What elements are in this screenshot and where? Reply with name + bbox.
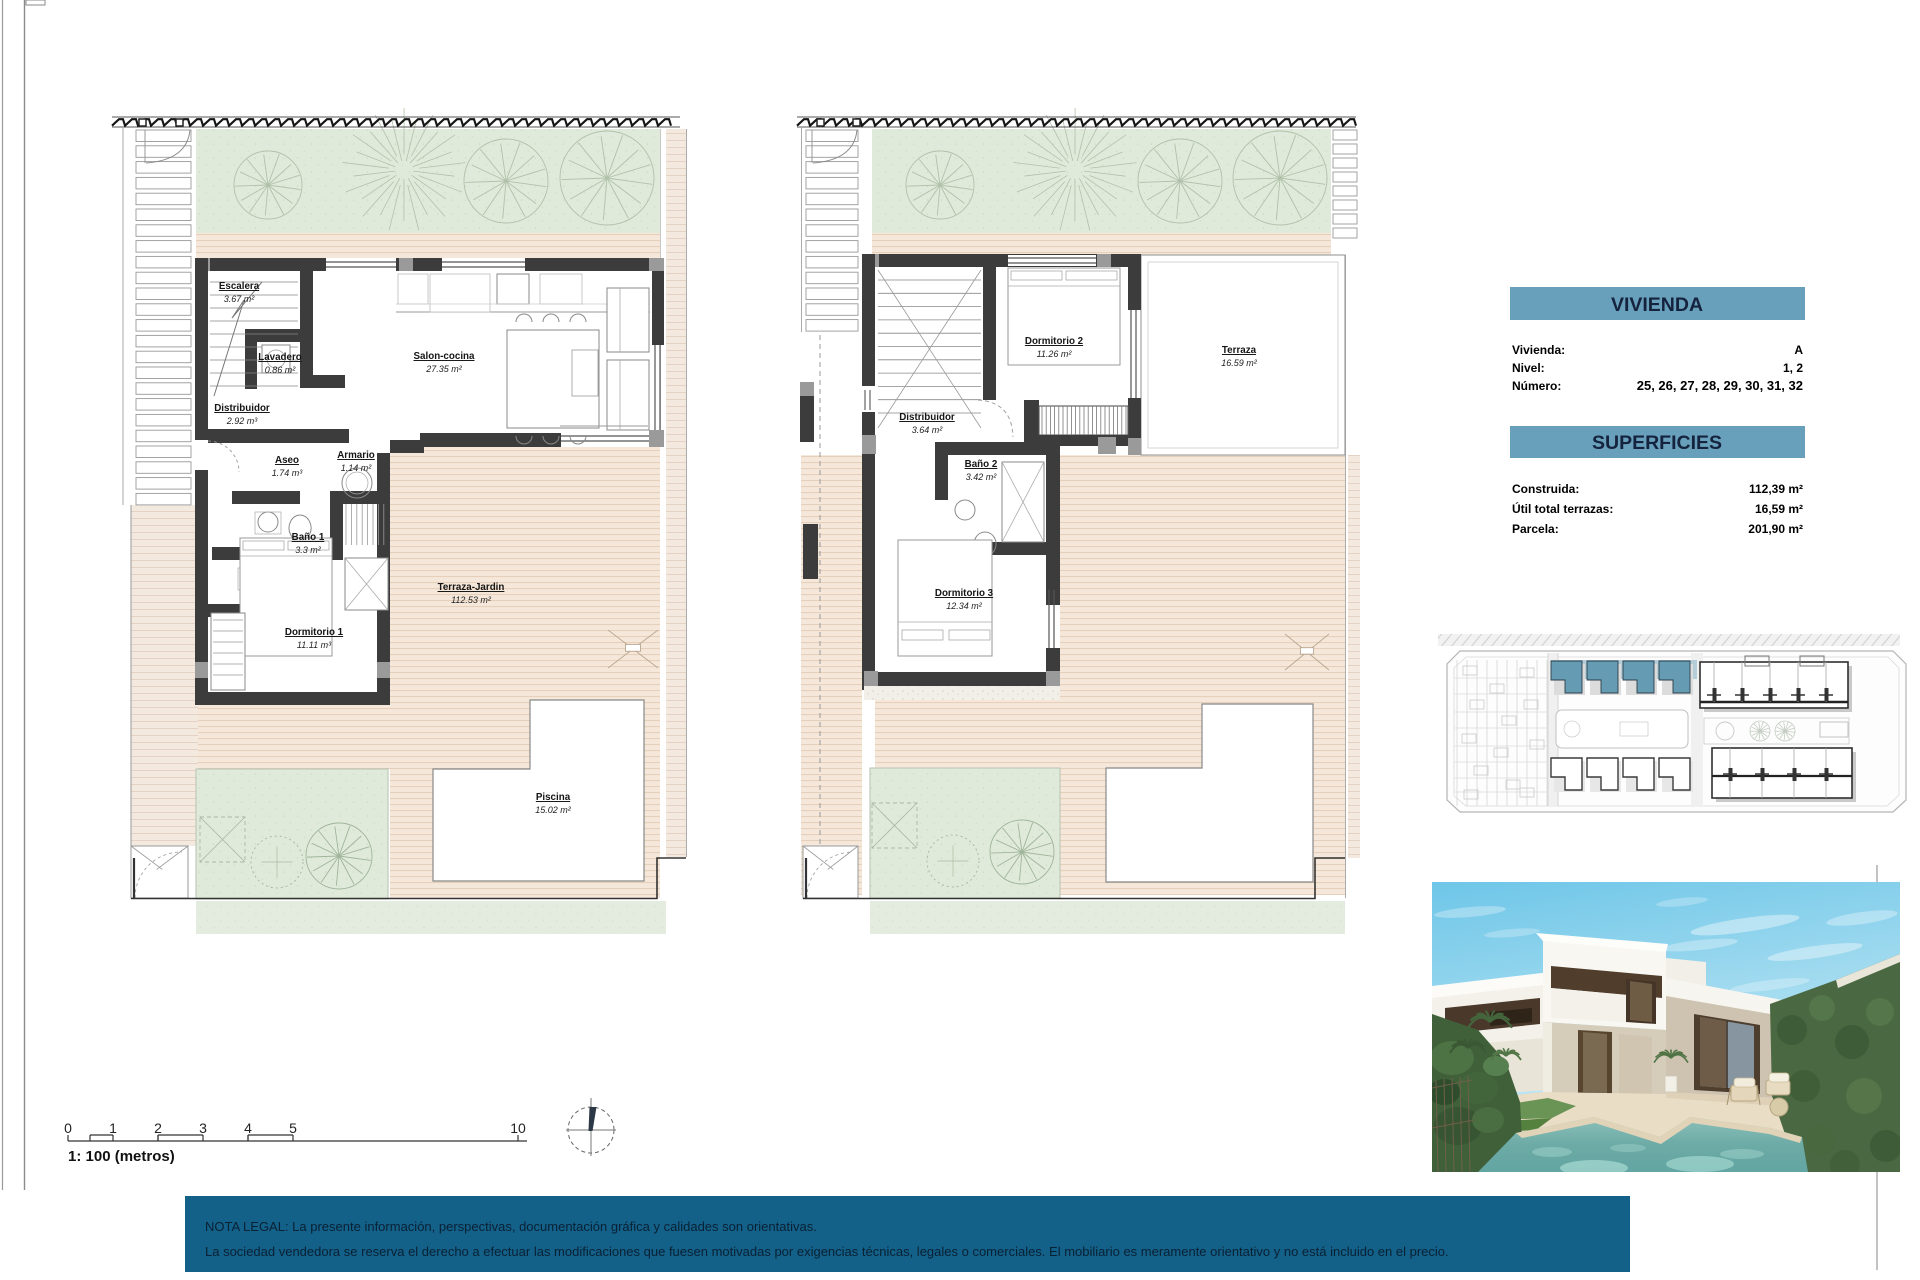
svg-text:Construida:: Construida: xyxy=(1512,482,1579,496)
svg-text:1: 1 xyxy=(109,1120,117,1136)
svg-text:10: 10 xyxy=(510,1120,526,1136)
svg-text:2: 2 xyxy=(154,1120,162,1136)
svg-text:Nivel:: Nivel: xyxy=(1512,361,1545,375)
svg-text:Escalera: Escalera xyxy=(219,281,260,292)
svg-text:3: 3 xyxy=(199,1120,207,1136)
svg-text:Distribuidor: Distribuidor xyxy=(899,412,955,423)
svg-text:15.02 m²: 15.02 m² xyxy=(535,805,572,815)
svg-text:12.34 m²: 12.34 m² xyxy=(946,601,983,611)
svg-text:3.64 m²: 3.64 m² xyxy=(912,425,944,435)
svg-text:0.86 m²: 0.86 m² xyxy=(265,365,297,375)
svg-text:Parcela:: Parcela: xyxy=(1512,522,1559,536)
svg-text:16.59 m²: 16.59 m² xyxy=(1221,358,1258,368)
svg-text:Baño 2: Baño 2 xyxy=(965,459,998,470)
svg-text:Vivienda:: Vivienda: xyxy=(1512,343,1565,357)
svg-text:1: 100 (metros): 1: 100 (metros) xyxy=(68,1148,175,1165)
svg-text:1.14 m²: 1.14 m² xyxy=(341,463,373,473)
svg-text:Distribuidor: Distribuidor xyxy=(214,403,270,414)
svg-text:1.74 m³: 1.74 m³ xyxy=(272,468,304,478)
svg-text:3.42 m²: 3.42 m² xyxy=(966,472,998,482)
svg-text:25, 26, 27, 28, 29, 30, 31, 3: 25, 26, 27, 28, 29, 30, 31, 32 xyxy=(1637,378,1803,393)
svg-text:27.35 m²: 27.35 m² xyxy=(425,364,463,374)
svg-text:2.92 m³: 2.92 m³ xyxy=(226,416,259,426)
svg-text:Útil total terrazas:: Útil total terrazas: xyxy=(1512,501,1613,516)
svg-text:3.67 m²: 3.67 m² xyxy=(224,294,256,304)
svg-text:Terraza: Terraza xyxy=(1222,345,1257,356)
svg-text:1, 2: 1, 2 xyxy=(1783,361,1803,375)
svg-text:Salon-cocina: Salon-cocina xyxy=(414,351,476,362)
svg-text:Aseo: Aseo xyxy=(275,455,299,466)
svg-text:201,90 m²: 201,90 m² xyxy=(1748,522,1803,536)
svg-text:A: A xyxy=(1794,343,1803,357)
svg-text:Piscina: Piscina xyxy=(536,792,571,803)
svg-text:5: 5 xyxy=(289,1120,297,1136)
svg-text:4: 4 xyxy=(244,1120,252,1136)
svg-text:Armario: Armario xyxy=(337,450,375,461)
svg-text:112.53 m²: 112.53 m² xyxy=(451,595,492,605)
svg-text:La sociedad vendedora se reser: La sociedad vendedora se reserva el dere… xyxy=(205,1244,1449,1259)
svg-text:16,59 m²: 16,59 m² xyxy=(1755,502,1803,516)
svg-text:112,39 m²: 112,39 m² xyxy=(1749,482,1803,496)
svg-text:VIVIENDA: VIVIENDA xyxy=(1611,294,1703,316)
svg-text:SUPERFICIES: SUPERFICIES xyxy=(1592,432,1722,454)
svg-text:Lavadero: Lavadero xyxy=(258,352,302,363)
svg-text:Terraza-Jardin: Terraza-Jardin xyxy=(438,582,505,593)
svg-text:11.26 m²: 11.26 m² xyxy=(1037,349,1073,359)
svg-text:Dormitorio 2: Dormitorio 2 xyxy=(1025,336,1084,347)
svg-text:Número:: Número: xyxy=(1512,379,1561,393)
svg-text:3.3 m²: 3.3 m² xyxy=(295,545,322,555)
svg-text:Baño 1: Baño 1 xyxy=(292,532,325,543)
svg-text:NOTA LEGAL: La presente inform: NOTA LEGAL: La presente información, per… xyxy=(205,1219,817,1234)
svg-text:11.11 m³: 11.11 m³ xyxy=(297,640,332,650)
svg-text:0: 0 xyxy=(64,1120,72,1136)
svg-text:Dormitorio 3: Dormitorio 3 xyxy=(935,588,994,599)
svg-text:Dormitorio 1: Dormitorio 1 xyxy=(285,627,344,638)
